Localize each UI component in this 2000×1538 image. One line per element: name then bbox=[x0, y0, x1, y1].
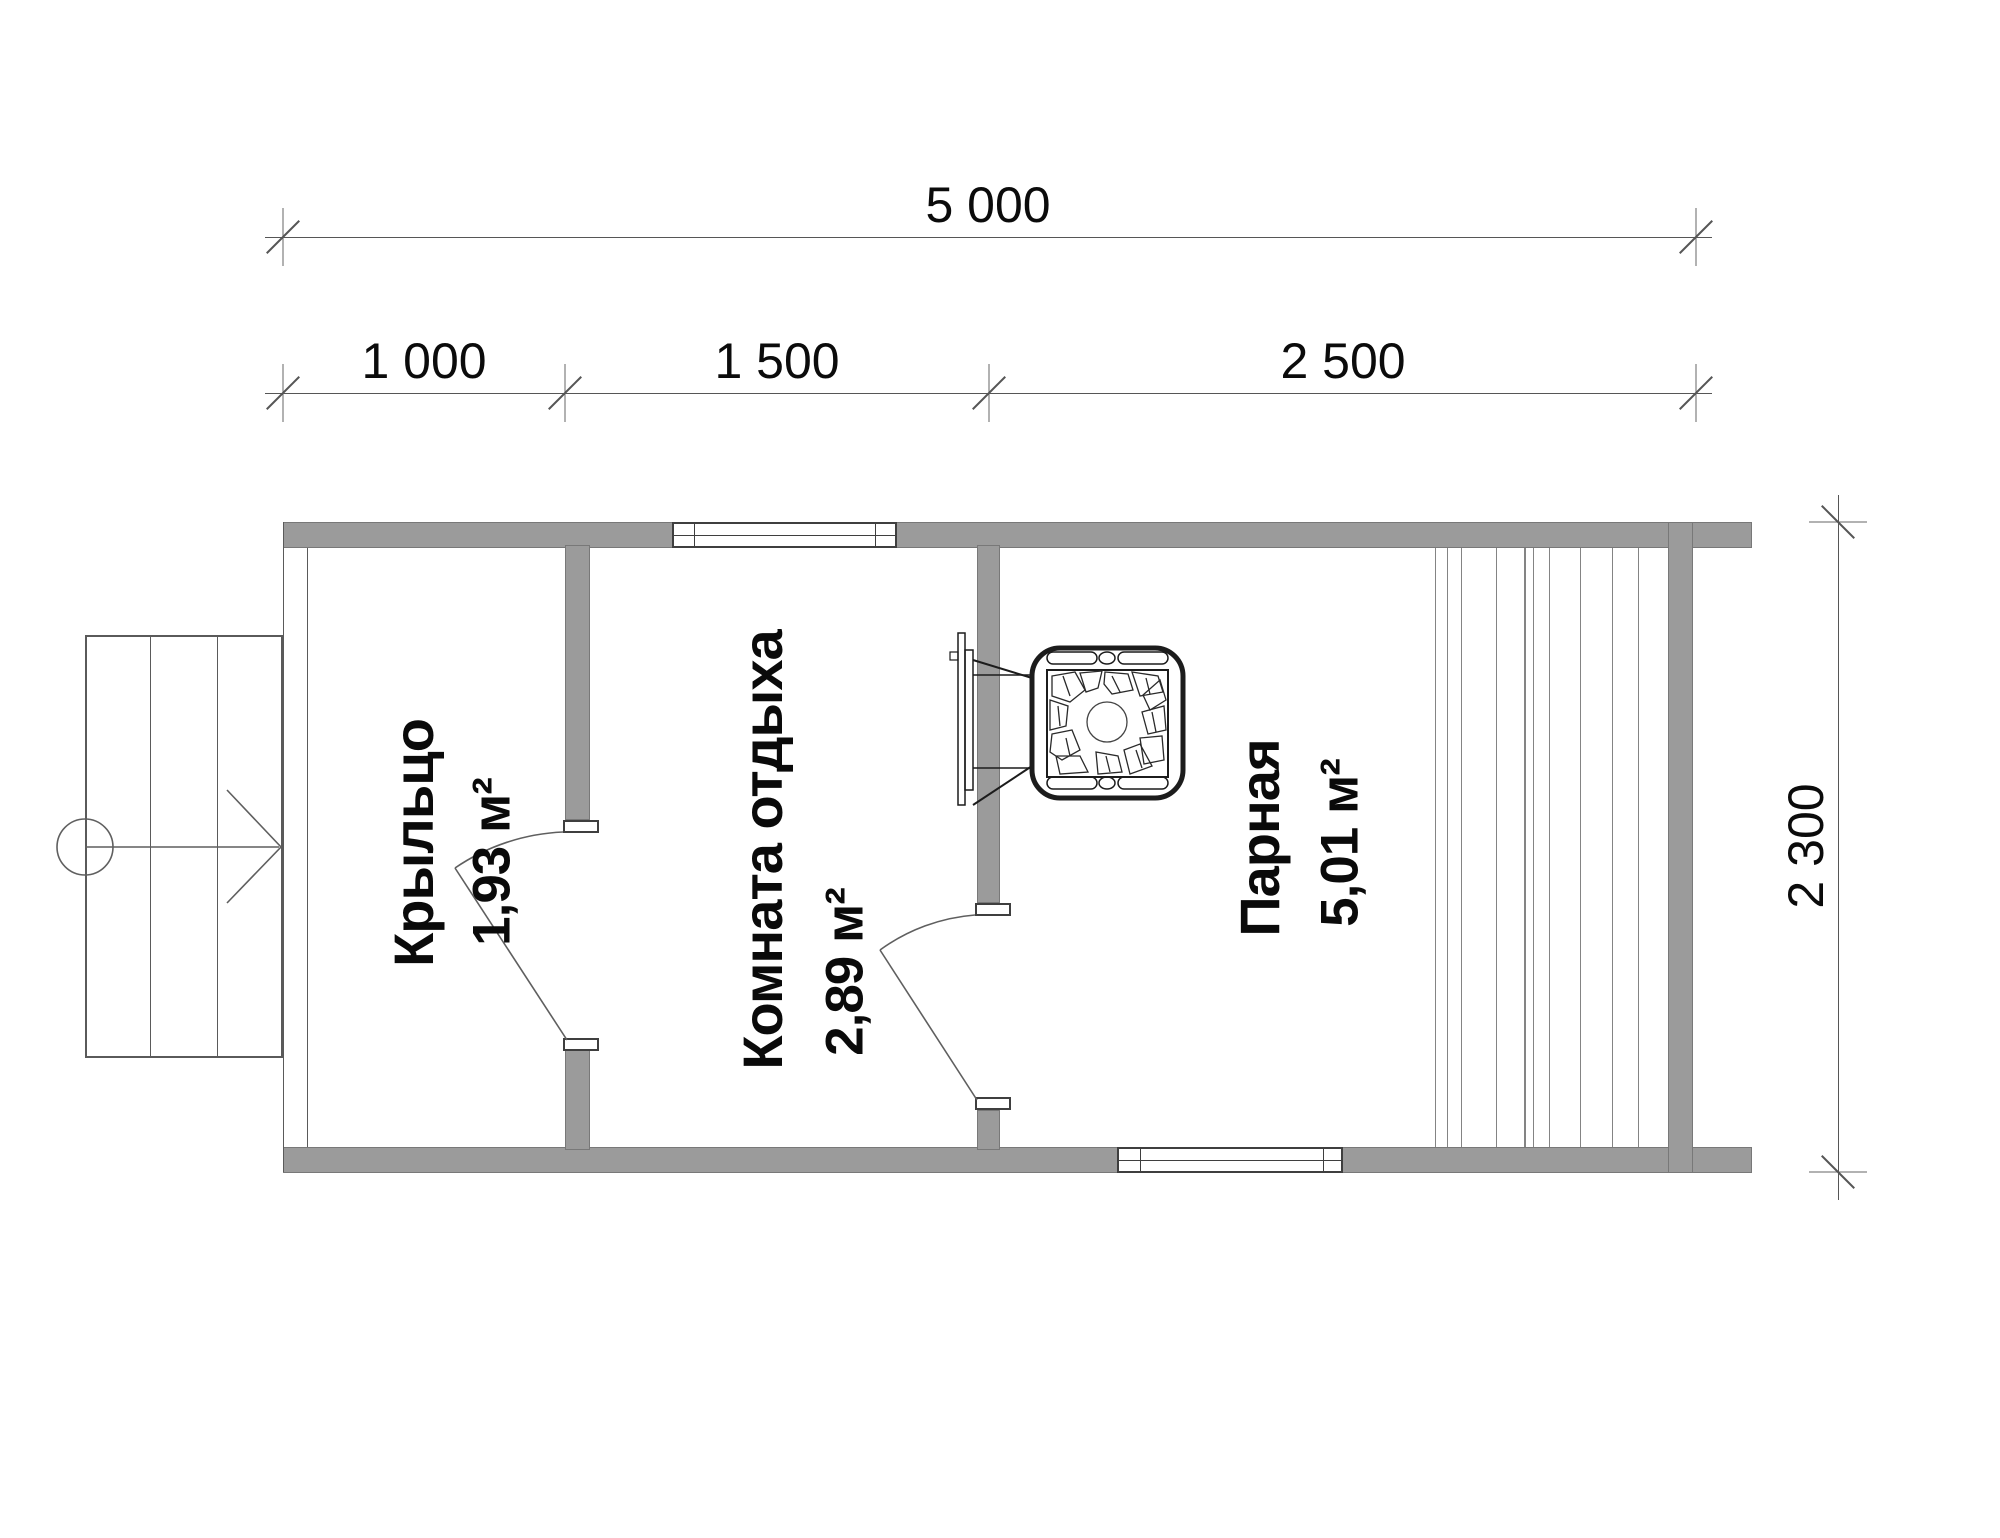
room-area-porch: 1,93 м² bbox=[466, 778, 519, 946]
entry-arrow bbox=[57, 790, 281, 903]
room-label-porch: Крыльцо bbox=[386, 719, 442, 967]
stove-firebox-plate-inner bbox=[965, 650, 973, 790]
stove-center-circle bbox=[1087, 702, 1127, 742]
plan-linework bbox=[0, 0, 2000, 1538]
door-swing-arc bbox=[880, 915, 975, 950]
room-area-rest-room: 2,89 м² bbox=[819, 888, 872, 1056]
stove-firebox-nub bbox=[950, 652, 958, 660]
door-steam bbox=[880, 915, 977, 1100]
stove-firebox-plate bbox=[958, 633, 965, 805]
room-label-rest-room: Комната отдыха bbox=[735, 630, 791, 1069]
room-area-steam-room: 5,01 м² bbox=[1314, 759, 1367, 927]
floor-plan-canvas: 5 000 1 000 1 500 2 500 2 300 bbox=[0, 0, 2000, 1538]
room-label-steam-room: Парная bbox=[1232, 739, 1288, 936]
stove-stones bbox=[1050, 671, 1166, 774]
sauna-stove bbox=[950, 633, 1183, 805]
door-leaf bbox=[880, 950, 977, 1100]
